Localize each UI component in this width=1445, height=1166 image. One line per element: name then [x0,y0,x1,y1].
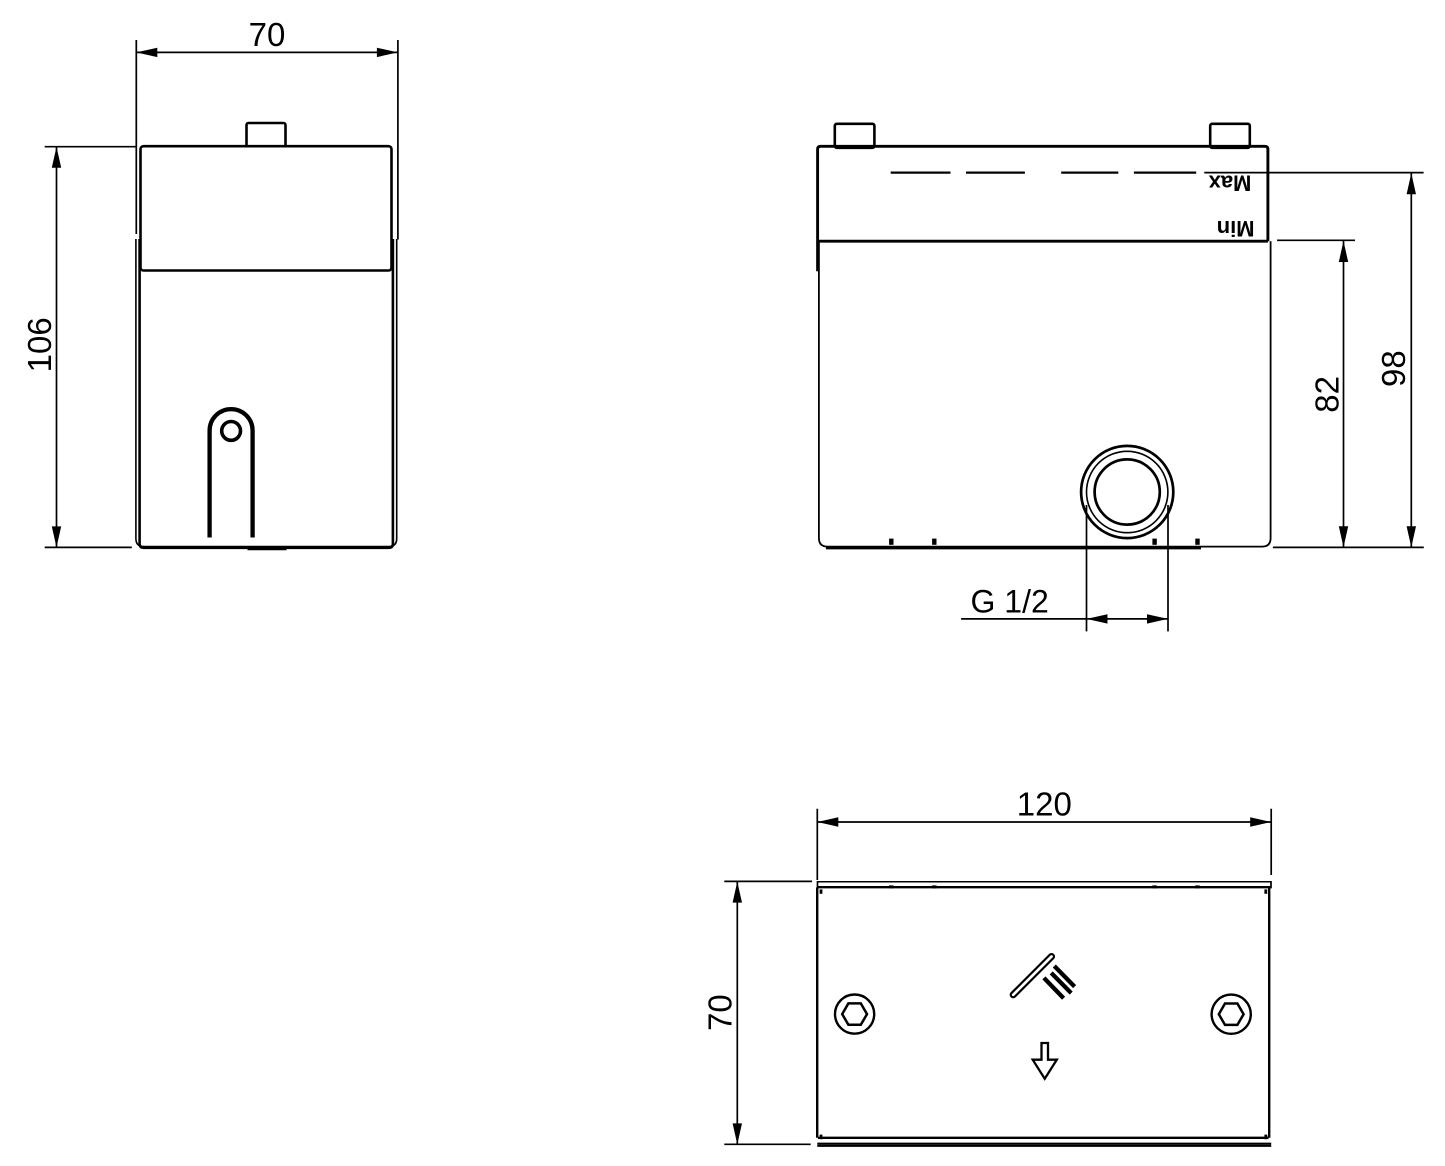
svg-text:G 1/2: G 1/2 [971,584,1049,620]
svg-text:Max: Max [1208,170,1252,195]
svg-text:106: 106 [21,317,58,372]
svg-text:98: 98 [1375,350,1412,387]
svg-text:70: 70 [249,16,286,53]
svg-text:Min: Min [1217,216,1255,241]
svg-text:82: 82 [1309,376,1346,413]
svg-text:120: 120 [1017,786,1072,823]
svg-text:70: 70 [701,994,738,1031]
